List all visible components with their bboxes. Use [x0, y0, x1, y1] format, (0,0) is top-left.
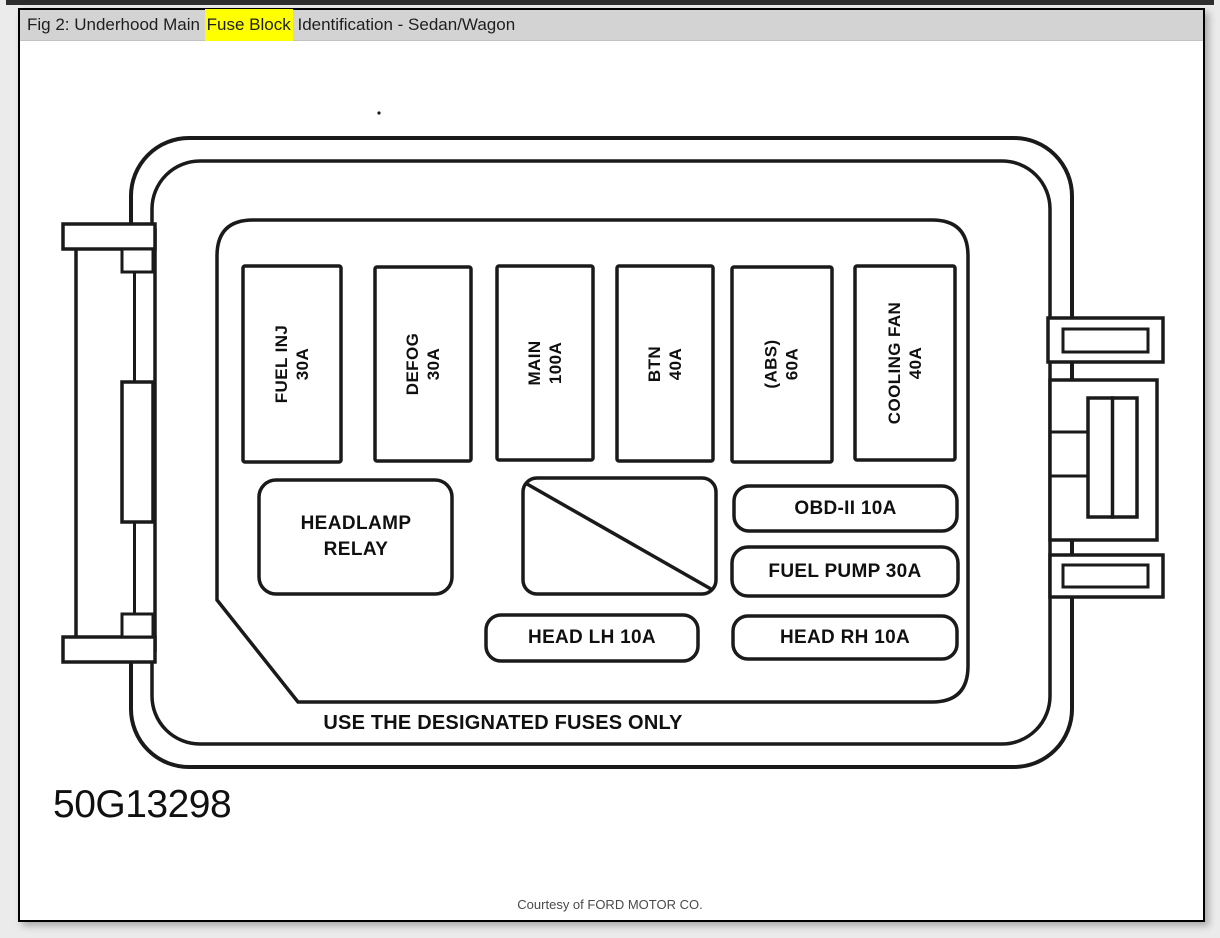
- part-number: 50G13298: [53, 783, 231, 827]
- fuse-label-fuel-inj: FUEL INJ 30A: [243, 266, 341, 462]
- warning-text: USE THE DESIGNATED FUSES ONLY: [290, 707, 716, 739]
- fuse-name: COOLING FAN: [884, 302, 905, 424]
- figure-title-suffix: Identification - Sedan/Wagon: [293, 15, 515, 34]
- fuse-label-defog: DEFOG 30A: [375, 267, 471, 461]
- fuse-label-cooling-fan: COOLING FAN 40A: [855, 266, 955, 460]
- relay-label-line2: RELAY: [324, 537, 389, 563]
- figure-title-prefix: Fig 2: Underhood Main: [27, 15, 205, 34]
- headlamp-relay-label: HEADLAMP RELAY: [261, 489, 451, 585]
- pill-label-text: HEAD RH 10A: [780, 626, 910, 650]
- figure-viewer-page: Fig 2: Underhood Main Fuse Block Identif…: [0, 0, 1220, 938]
- pill-label-text: OBD-II 10A: [794, 497, 896, 521]
- fuse-name: FUEL INJ: [271, 325, 292, 403]
- fuse-name: (ABS): [760, 339, 781, 388]
- fuse-amp: 60A: [782, 348, 803, 380]
- window-top-edge: [6, 0, 1214, 5]
- pill-label-text: HEAD LH 10A: [528, 626, 656, 650]
- fuse-amp: 40A: [665, 348, 686, 380]
- fuse-amp: 100A: [545, 342, 566, 384]
- fuse-name: MAIN: [524, 340, 545, 385]
- fuse-label-abs: (ABS) 60A: [732, 267, 832, 462]
- pill-label-text: FUEL PUMP 30A: [768, 560, 921, 584]
- figure-title-highlight: Fuse Block: [205, 9, 293, 41]
- fuse-label-main: MAIN 100A: [497, 266, 593, 460]
- fuse-label-head-rh: HEAD RH 10A: [733, 616, 957, 659]
- fuse-label-btn: BTN 40A: [617, 267, 713, 461]
- fuse-label-head-lh: HEAD LH 10A: [486, 615, 698, 661]
- fuse-label-obd: OBD-II 10A: [734, 486, 957, 531]
- courtesy-credit: Courtesy of FORD MOTOR CO.: [0, 897, 1220, 912]
- fuse-name: BTN: [644, 346, 665, 382]
- relay-label-line1: HEADLAMP: [301, 511, 412, 537]
- fuse-amp: 40A: [905, 347, 926, 379]
- fuse-amp: 30A: [292, 348, 313, 380]
- fuse-amp: 30A: [423, 348, 444, 380]
- figure-title-bar: Fig 2: Underhood Main Fuse Block Identif…: [20, 10, 1203, 41]
- fuse-label-fuel-pump: FUEL PUMP 30A: [732, 547, 958, 596]
- fuse-name: DEFOG: [402, 333, 423, 395]
